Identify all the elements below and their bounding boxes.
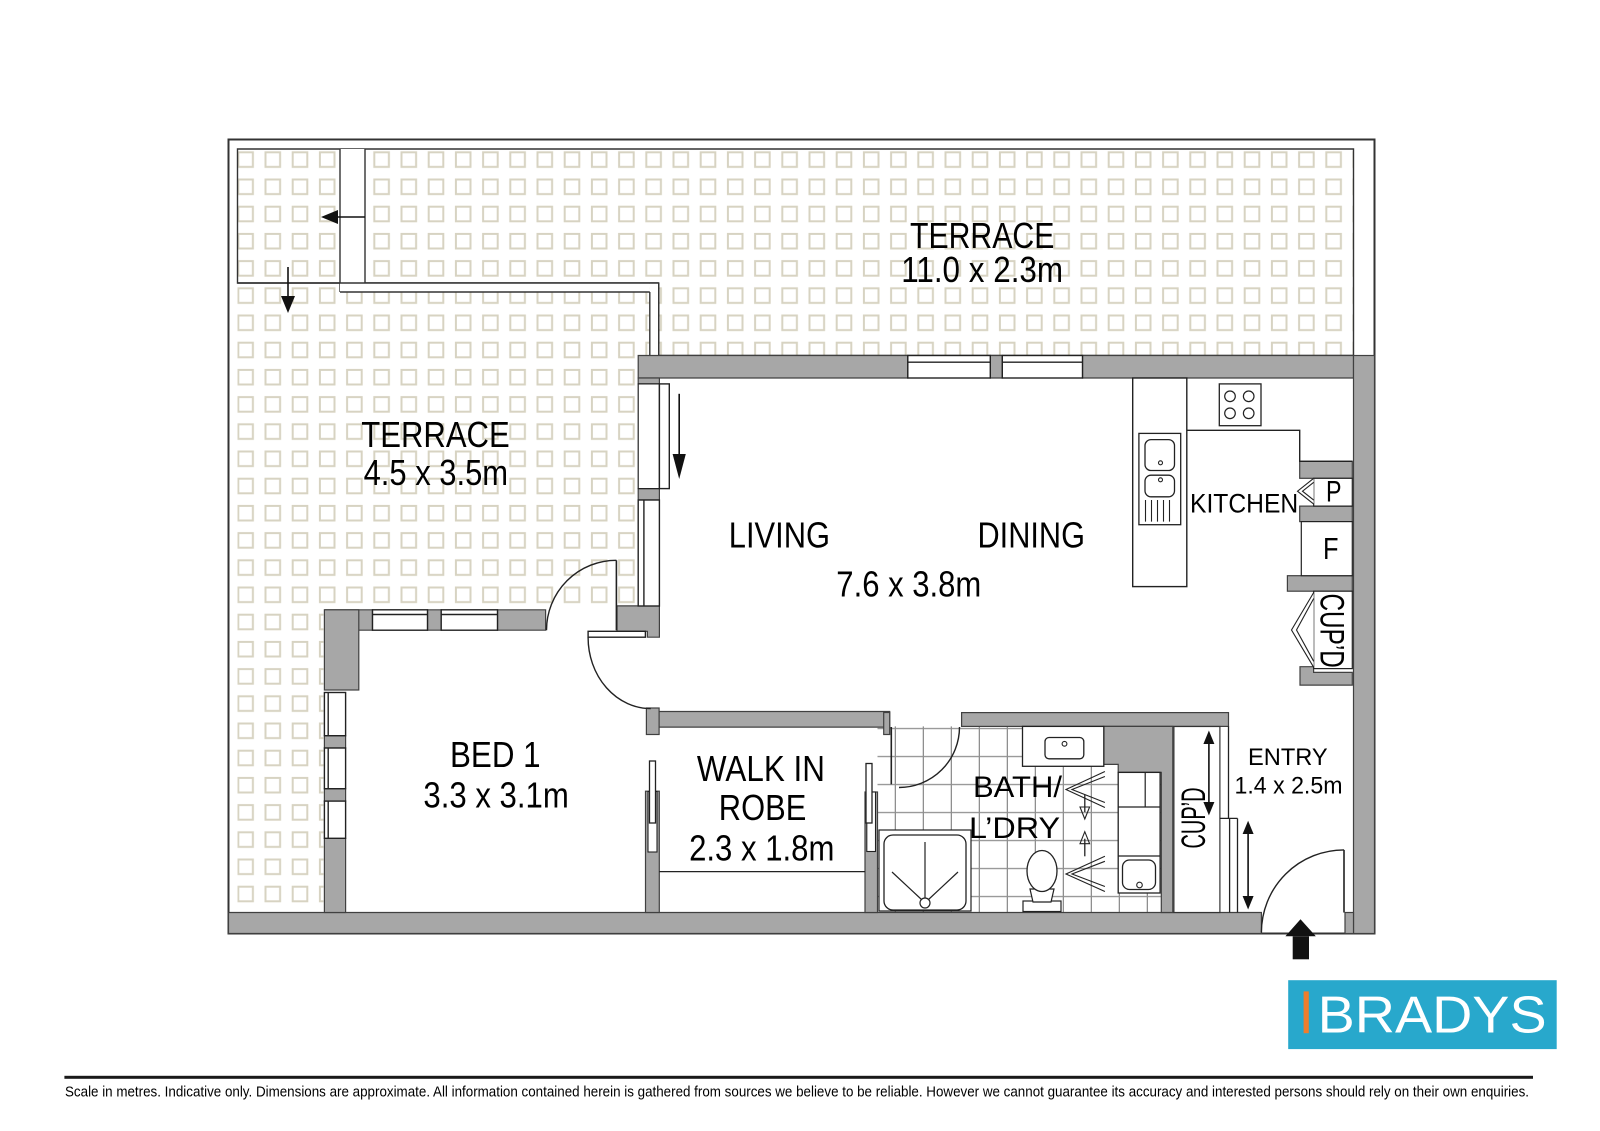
svg-text:DINING: DINING — [978, 515, 1086, 556]
svg-text:11.0 x 2.3m: 11.0 x 2.3m — [901, 249, 1063, 290]
svg-text:WALK IN: WALK IN — [697, 748, 825, 789]
svg-text:KITCHEN: KITCHEN — [1190, 488, 1298, 518]
svg-text:3.3 x 3.1m: 3.3 x 3.1m — [423, 775, 568, 816]
svg-text:CUP’D: CUP’D — [1313, 594, 1351, 668]
svg-text:BATH/: BATH/ — [973, 771, 1063, 804]
svg-text:LIVING: LIVING — [729, 515, 830, 556]
svg-text:F: F — [1323, 531, 1339, 566]
svg-text:4.5 x 3.5m: 4.5 x 3.5m — [364, 452, 509, 493]
svg-text:7.6 x 3.8m: 7.6 x 3.8m — [836, 563, 981, 604]
svg-text:P: P — [1326, 476, 1342, 509]
svg-text:BED 1: BED 1 — [450, 734, 541, 775]
svg-text:TERRACE: TERRACE — [361, 414, 509, 455]
svg-text:ENTRY: ENTRY — [1248, 744, 1328, 771]
svg-text:ROBE: ROBE — [719, 787, 807, 828]
svg-text:1.4 x 2.5m: 1.4 x 2.5m — [1235, 773, 1343, 800]
svg-text:CUP’D: CUP’D — [1175, 788, 1213, 849]
svg-text:BRADYS: BRADYS — [1318, 987, 1547, 1045]
svg-text:2.3 x 1.8m: 2.3 x 1.8m — [689, 828, 834, 869]
svg-text:Scale in metres. Indicative on: Scale in metres. Indicative only. Dimens… — [65, 1085, 1529, 1101]
svg-text:L’DRY: L’DRY — [969, 812, 1060, 845]
